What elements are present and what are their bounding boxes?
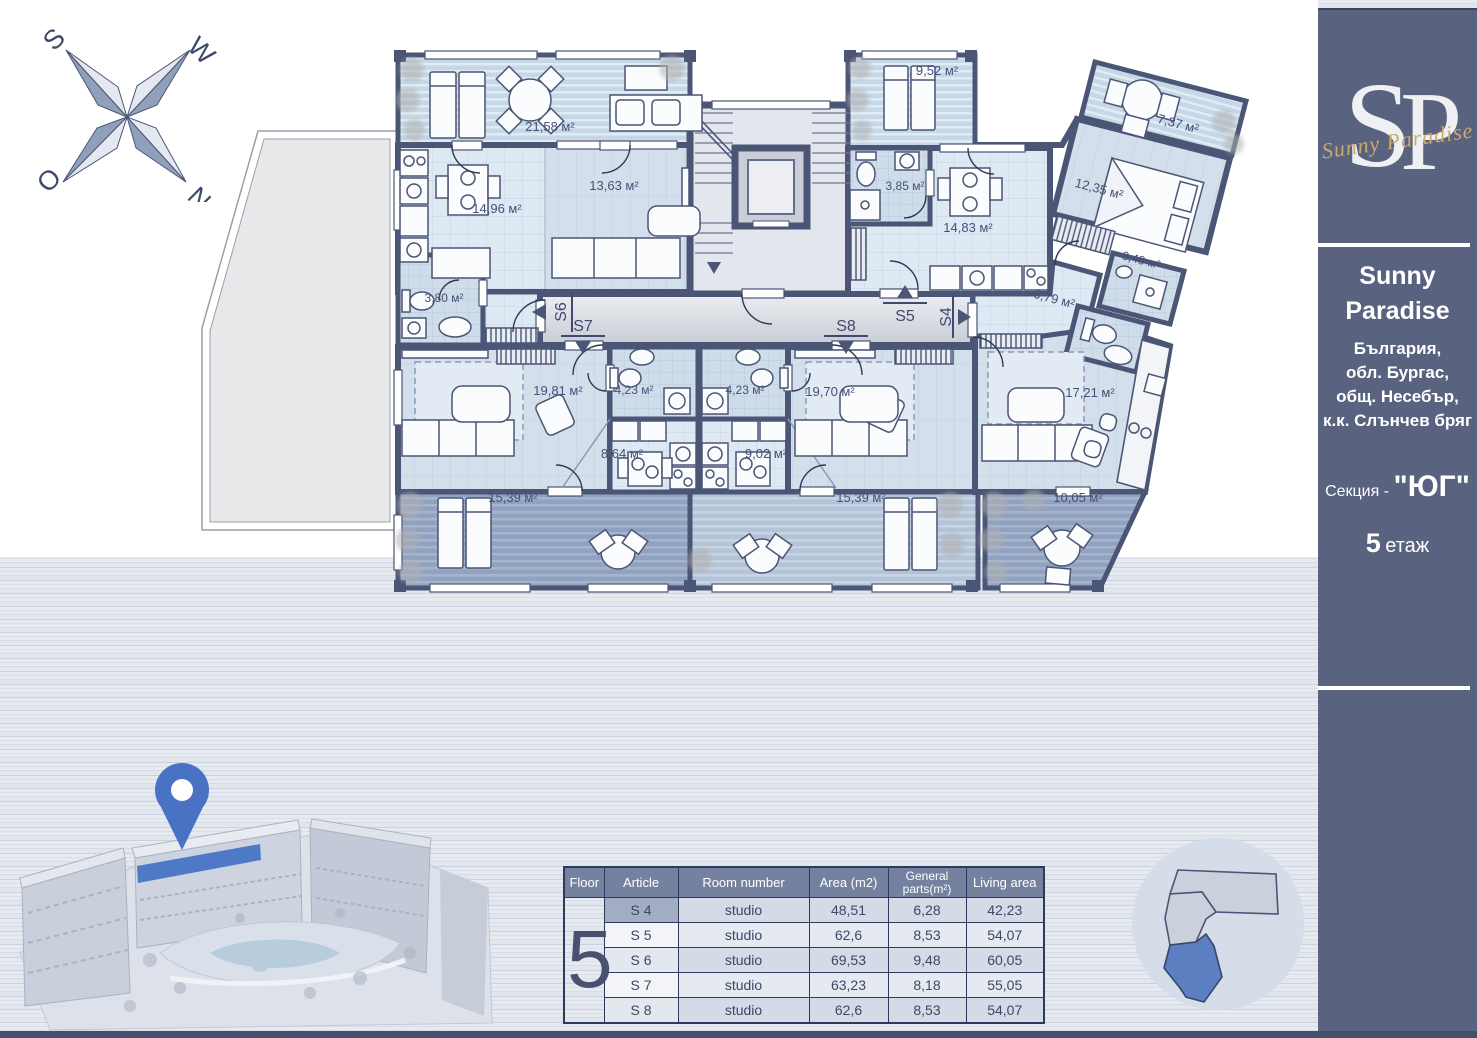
living-cell: 54,07 xyxy=(966,923,1044,948)
table-row: 5 S 4 studio 48,51 6,28 42,23 xyxy=(564,898,1044,923)
col-header-area: Area (m2) xyxy=(809,867,888,898)
room-area-label: 9,52 м² xyxy=(916,63,959,78)
floor-number-cell: 5 xyxy=(564,898,604,1024)
area-cell: 62,6 xyxy=(809,998,888,1024)
floor-word: етаж xyxy=(1385,535,1429,557)
site-wall xyxy=(440,870,488,1016)
table-row: S 7 studio 63,23 8,18 55,05 xyxy=(564,973,1044,998)
floor-plan: 21,58 м² 14,96 м² 13,63 м² 3,80 м² 9,52 … xyxy=(195,40,1320,600)
general-cell: 8,18 xyxy=(888,973,966,998)
room-area-label: 15,39 м² xyxy=(836,490,886,505)
area-cell: 48,51 xyxy=(809,898,888,923)
general-cell: 8,53 xyxy=(888,923,966,948)
room-cell: studio xyxy=(678,923,809,948)
general-cell: 6,28 xyxy=(888,898,966,923)
room-cell: studio xyxy=(678,948,809,973)
living-cell: 54,07 xyxy=(966,998,1044,1024)
address-line: общ. Несебър, xyxy=(1318,385,1477,409)
project-title: Sunny Paradise xyxy=(1318,259,1477,329)
room-area-label: 4,23 м² xyxy=(726,383,765,397)
page-bottom-border xyxy=(0,1031,1477,1038)
sidebar-divider xyxy=(1318,686,1470,690)
room-area-label: 21,58 м² xyxy=(525,119,575,134)
room-cell: studio xyxy=(678,898,809,923)
compass-s: S xyxy=(37,22,71,56)
room-area-label: 14,83 м² xyxy=(943,220,993,235)
sidebar-divider xyxy=(1318,243,1470,247)
col-header-room: Room number xyxy=(678,867,809,898)
col-header-floor: Floor xyxy=(564,867,604,898)
living-cell: 55,05 xyxy=(966,973,1044,998)
room-area-label: 14,96 м² xyxy=(472,201,522,216)
building-3d-render xyxy=(10,738,510,1038)
address-line: к.к. Слънчев бряг xyxy=(1318,409,1477,433)
room-area-label: 19,81 м² xyxy=(533,383,583,398)
col-header-article: Article xyxy=(604,867,678,898)
left-building xyxy=(20,848,130,1006)
adjacent-roof xyxy=(202,131,398,530)
room-area-label: 3,80 м² xyxy=(425,291,464,305)
room-cell: studio xyxy=(678,973,809,998)
section-label: Секция - xyxy=(1325,483,1389,500)
living-cell: 42,23 xyxy=(966,898,1044,923)
article-cell: S 7 xyxy=(604,973,678,998)
general-cell: 8,53 xyxy=(888,998,966,1024)
units-table: Floor Article Room number Area (m2) Gene… xyxy=(563,866,1045,1024)
general-cell: 9,48 xyxy=(888,948,966,973)
table-row: S 6 studio 69,53 9,48 60,05 xyxy=(564,948,1044,973)
area-cell: 63,23 xyxy=(809,973,888,998)
article-cell: S 6 xyxy=(604,948,678,973)
section-row: Секция - "ЮГ" xyxy=(1318,470,1477,504)
room-area-label: 9,02 м² xyxy=(745,446,788,461)
table-header-row: Floor Article Room number Area (m2) Gene… xyxy=(564,867,1044,898)
room-cell: studio xyxy=(678,998,809,1024)
table-row: S 8 studio 62,6 8,53 54,07 xyxy=(564,998,1044,1024)
unit-label-s6: S6 xyxy=(553,302,570,322)
room-area-label: 4,23 м² xyxy=(615,383,654,397)
col-header-living: Living area xyxy=(966,867,1044,898)
address-line: обл. Бургас, xyxy=(1318,361,1477,385)
floor-number: 5 xyxy=(1366,528,1381,558)
room-area-label: 10,05 м² xyxy=(1053,490,1103,505)
floor-row: 5 етаж xyxy=(1318,528,1477,559)
project-address: България, обл. Бургас, общ. Несебър, к.к… xyxy=(1318,337,1477,433)
room-area-label: 15,39 м² xyxy=(488,490,538,505)
room-area-label: 3,85 м² xyxy=(886,179,925,193)
address-line: България, xyxy=(1318,337,1477,361)
page: S W O N xyxy=(0,0,1477,1038)
elevator xyxy=(735,148,807,227)
section-value: "ЮГ" xyxy=(1394,470,1470,503)
project-title-line2: Paradise xyxy=(1318,294,1477,329)
room-area-label: 8,64 м² xyxy=(601,446,644,461)
compass-o: O xyxy=(31,162,67,198)
unit-label-s5: S5 xyxy=(895,308,915,325)
project-title-line1: Sunny xyxy=(1318,259,1477,294)
article-cell: S 5 xyxy=(604,923,678,948)
room-area-label: 17,21 м² xyxy=(1065,385,1115,400)
sidebar: S P Sunny Paradise Sunny Paradise Българ… xyxy=(1318,8,1477,1033)
table-row: S 5 studio 62,6 8,53 54,07 xyxy=(564,923,1044,948)
area-cell: 69,53 xyxy=(809,948,888,973)
article-cell: S 4 xyxy=(604,898,678,923)
compass-rose: S W O N xyxy=(28,22,218,202)
unit-label-s7: S7 xyxy=(573,318,593,335)
rooms xyxy=(398,55,1246,588)
unit-label-s8: S8 xyxy=(836,318,856,335)
key-circle xyxy=(1132,838,1304,1010)
section-key-diagram xyxy=(1128,822,1308,1022)
room-area-label: 19,70 м² xyxy=(805,384,855,399)
living-cell: 60,05 xyxy=(966,948,1044,973)
sp-logo: S P Sunny Paradise xyxy=(1318,62,1477,227)
article-cell: S 8 xyxy=(604,998,678,1024)
room-area-label: 13,63 м² xyxy=(589,178,639,193)
col-header-general: General parts(m²) xyxy=(888,867,966,898)
area-cell: 62,6 xyxy=(809,923,888,948)
